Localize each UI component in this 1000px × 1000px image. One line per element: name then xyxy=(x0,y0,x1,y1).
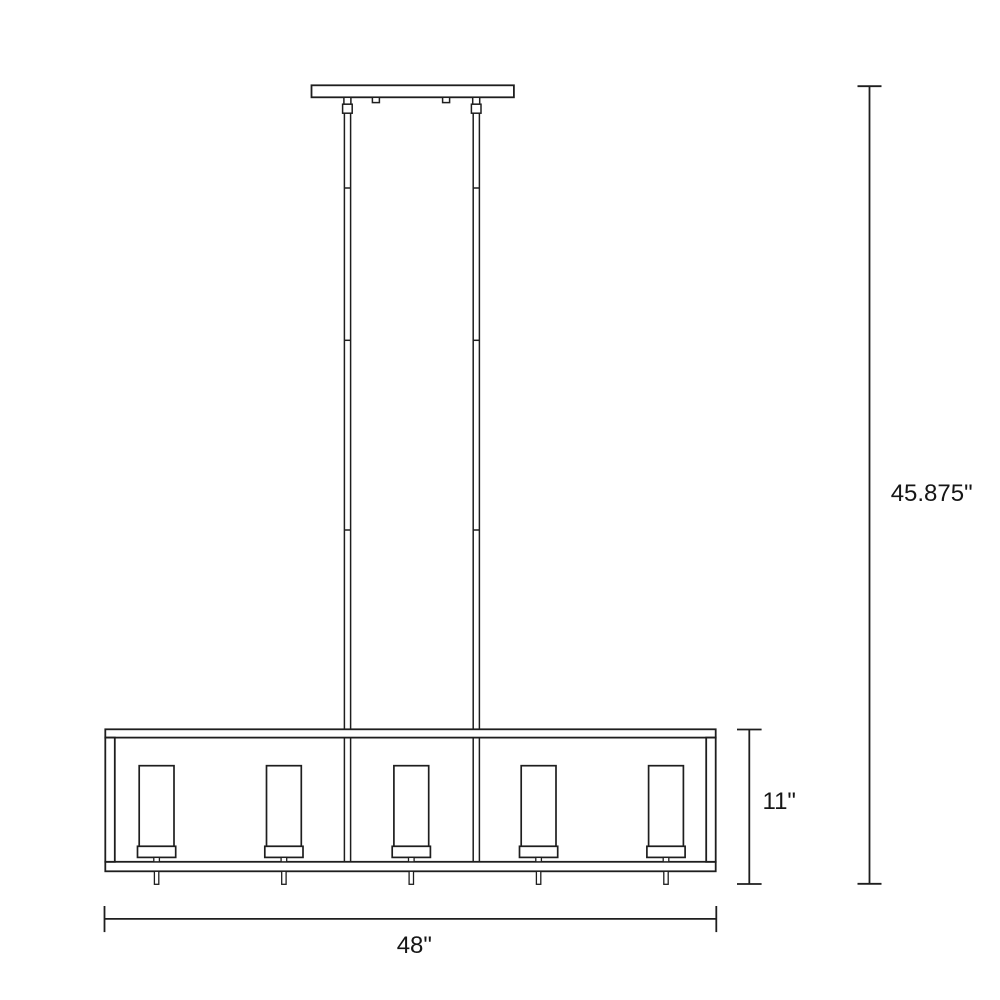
svg-text:48": 48" xyxy=(397,932,432,959)
svg-text:45.875": 45.875" xyxy=(891,480,973,507)
svg-text:11": 11" xyxy=(763,788,796,815)
